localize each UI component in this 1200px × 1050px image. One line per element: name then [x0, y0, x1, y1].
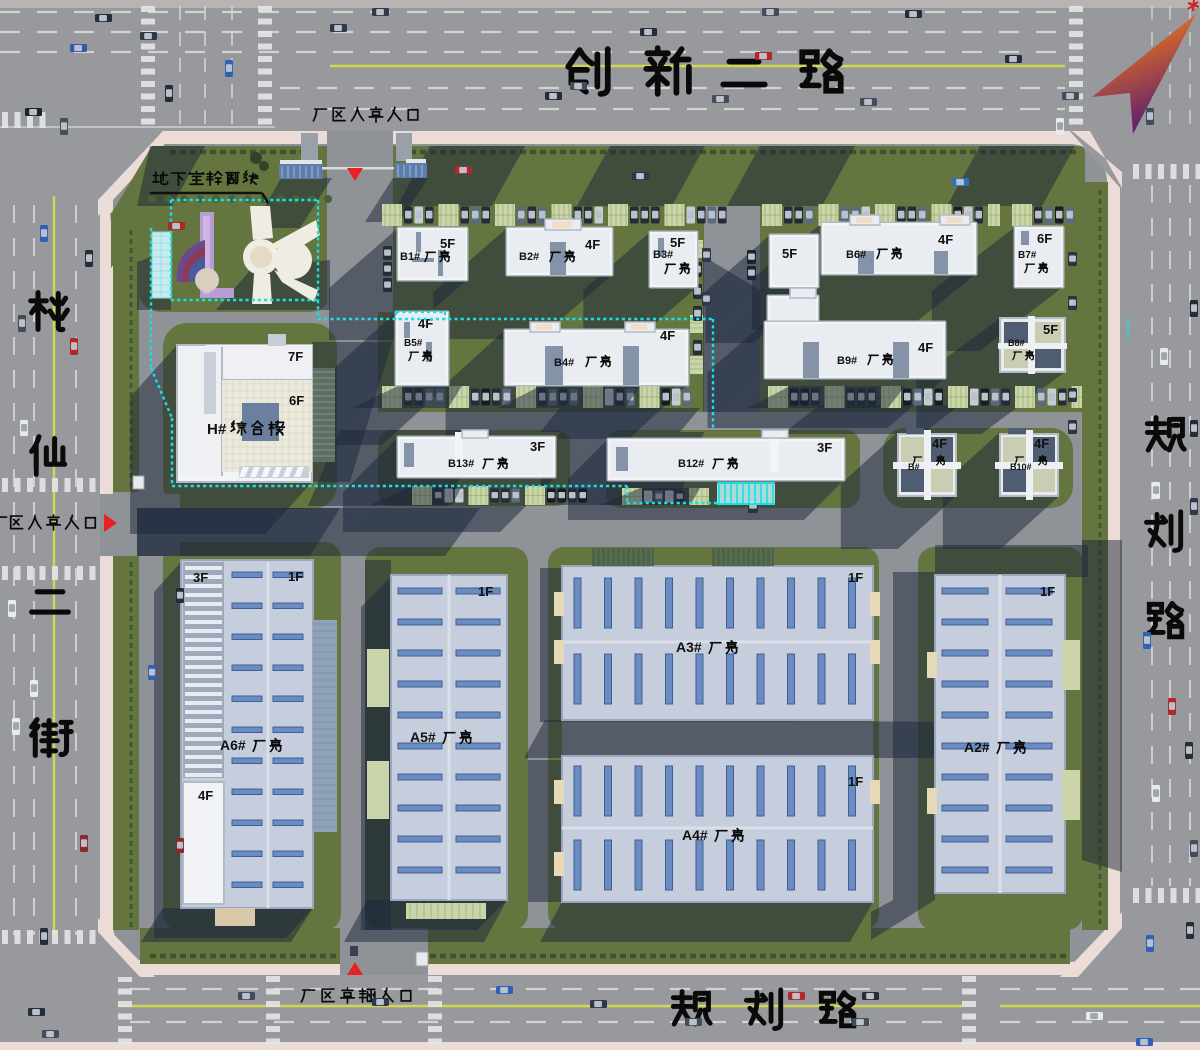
- svg-text:1F: 1F: [478, 584, 493, 599]
- svg-text:B1#: B1#: [400, 251, 420, 263]
- svg-text:3F: 3F: [193, 570, 208, 585]
- svg-text:4F: 4F: [938, 232, 953, 247]
- svg-text:1F: 1F: [848, 774, 863, 789]
- svg-text:A6#: A6#: [220, 737, 246, 753]
- svg-text:B#: B#: [908, 462, 920, 472]
- svg-text:1F: 1F: [1040, 584, 1055, 599]
- svg-text:B12#: B12#: [678, 458, 704, 470]
- svg-text:B9#: B9#: [837, 355, 857, 367]
- svg-text:4F: 4F: [918, 340, 933, 355]
- svg-text:B13#: B13#: [448, 458, 474, 470]
- svg-text:A2#: A2#: [964, 739, 990, 755]
- svg-text:B10#: B10#: [1010, 462, 1032, 472]
- svg-text:5F: 5F: [670, 235, 685, 250]
- svg-text:5F: 5F: [1043, 322, 1058, 337]
- svg-text:B7#: B7#: [1018, 250, 1037, 261]
- svg-text:4F: 4F: [585, 237, 600, 252]
- svg-text:4F: 4F: [660, 328, 675, 343]
- svg-text:B5#: B5#: [404, 338, 423, 349]
- svg-text:3F: 3F: [817, 440, 832, 455]
- svg-text:1F: 1F: [288, 569, 303, 584]
- svg-text:B8#: B8#: [1008, 338, 1025, 348]
- svg-text:B3#: B3#: [653, 249, 673, 261]
- svg-text:B6#: B6#: [846, 249, 866, 261]
- svg-text:4F: 4F: [932, 436, 947, 451]
- svg-text:A5#: A5#: [410, 729, 436, 745]
- svg-text:4F: 4F: [198, 788, 213, 803]
- svg-text:3F: 3F: [530, 439, 545, 454]
- svg-text:1F: 1F: [848, 570, 863, 585]
- svg-text:B2#: B2#: [519, 251, 539, 263]
- svg-text:H#: H#: [207, 421, 227, 438]
- svg-text:7F: 7F: [288, 349, 303, 364]
- svg-text:B4#: B4#: [554, 357, 574, 369]
- svg-text:5F: 5F: [440, 236, 455, 251]
- svg-text:5F: 5F: [782, 246, 797, 261]
- svg-text:6F: 6F: [289, 393, 304, 408]
- svg-text:A3#: A3#: [676, 639, 702, 655]
- svg-text:A4#: A4#: [682, 827, 708, 843]
- svg-text:4F: 4F: [1034, 436, 1049, 451]
- svg-text:6F: 6F: [1037, 231, 1052, 246]
